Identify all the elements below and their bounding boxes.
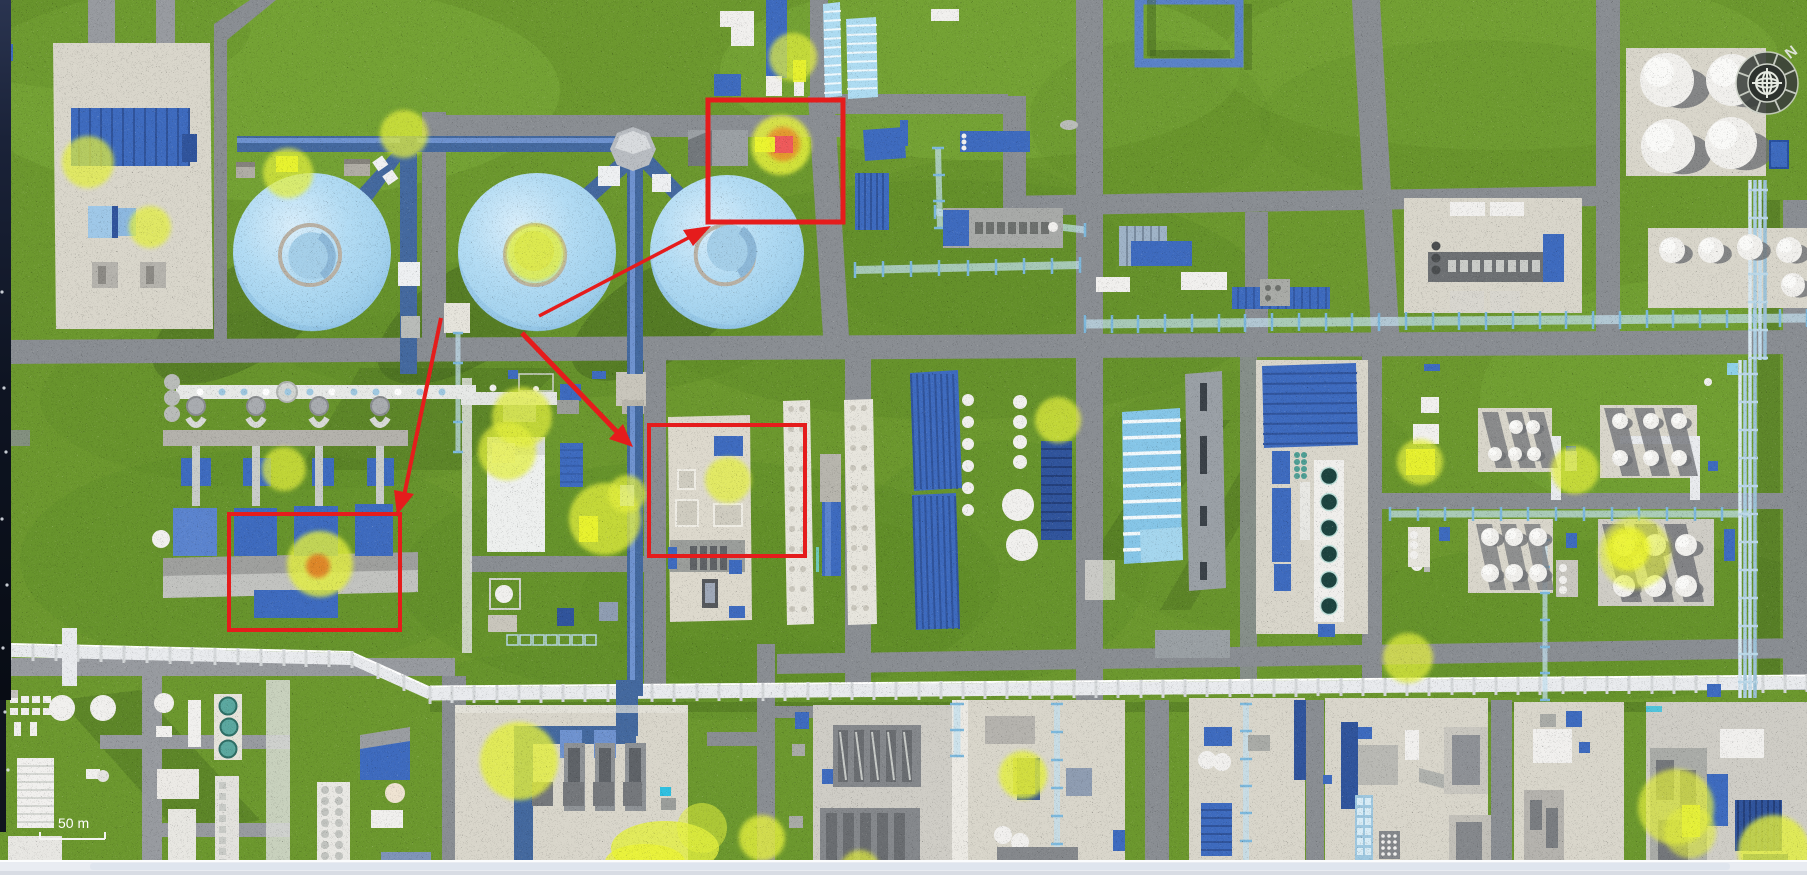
svg-text:50 m: 50 m xyxy=(58,815,89,831)
